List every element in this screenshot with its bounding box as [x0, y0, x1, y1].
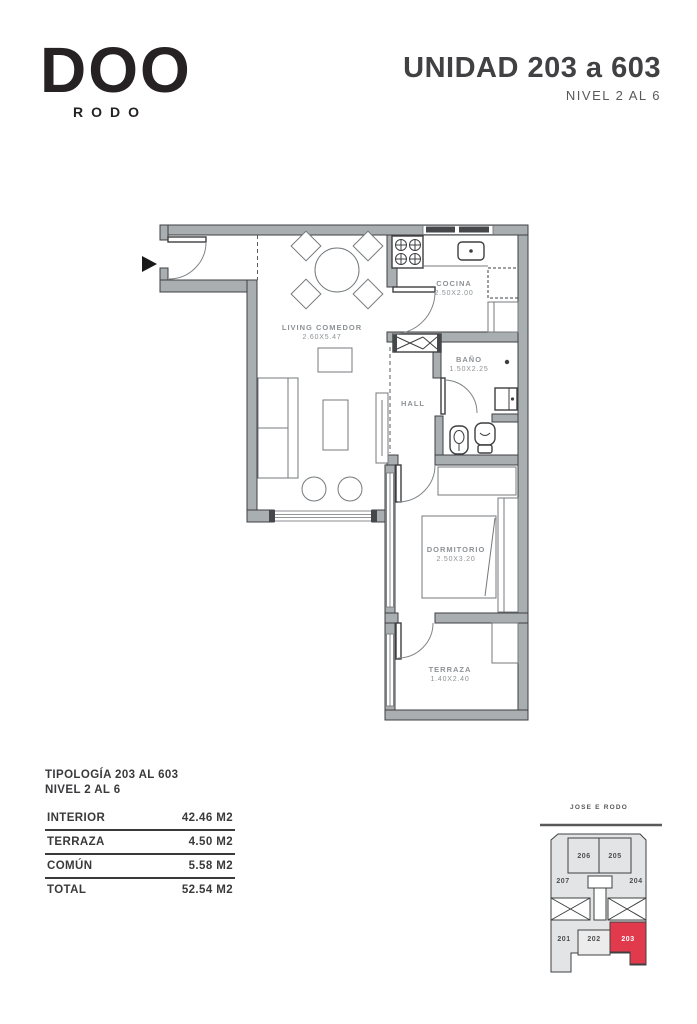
nivel-line: NIVEL 2 AL 6 — [45, 783, 235, 798]
entry-arrow-icon — [142, 256, 157, 272]
row-label: TOTAL — [47, 884, 86, 896]
bano-label: BAÑO — [456, 355, 482, 364]
vent-shaft — [393, 334, 441, 352]
cocina-dims: 2.50X2.00 — [434, 290, 473, 297]
cocina-label: COCINA — [436, 279, 472, 288]
kitchen-door-arc — [393, 292, 435, 334]
core-corridor — [594, 888, 606, 920]
sofa — [258, 378, 298, 478]
brand-logo: DOO RODO — [40, 38, 190, 120]
bedroom-door-leaf — [396, 465, 401, 502]
living-window — [274, 511, 372, 521]
bidet — [450, 426, 468, 454]
row-label: INTERIOR — [47, 812, 105, 824]
hall-label: HALL — [401, 399, 425, 408]
light-well-left — [551, 898, 590, 920]
pouf-2 — [338, 477, 362, 501]
bath-door-arc — [445, 380, 477, 413]
light-well-right — [608, 898, 646, 920]
dormitorio-label: DORMITORIO — [427, 545, 486, 554]
entry-door-leaf — [168, 237, 206, 242]
bano-dims: 1.50X2.25 — [449, 366, 488, 373]
row-label: COMÚN — [47, 860, 92, 872]
unit-203-highlight — [610, 922, 646, 964]
area-table: TIPOLOGÍA 203 AL 603 NIVEL 2 AL 6 INTERI… — [45, 768, 235, 901]
unit-title-block: UNIDAD 203 a 603 NIVEL 2 AL 6 — [403, 52, 661, 103]
kitchen-door-leaf — [393, 287, 435, 292]
kitchen-cabinet — [488, 302, 518, 332]
living-furniture — [258, 231, 388, 501]
pouf-1 — [302, 477, 326, 501]
row-value: 5.58 M2 — [189, 860, 233, 872]
row-value: 4.50 M2 — [189, 836, 233, 848]
area-table-heading: TIPOLOGÍA 203 AL 603 NIVEL 2 AL 6 — [45, 768, 235, 798]
terrace-door-leaf — [396, 623, 401, 659]
unit-207-label: 207 — [556, 878, 569, 885]
table-row: COMÚN 5.58 M2 — [45, 855, 235, 879]
unit-206-label: 206 — [577, 853, 590, 860]
terraza-dims: 1.40X2.40 — [430, 676, 469, 683]
coffee-table — [323, 400, 348, 450]
row-value: 52.54 M2 — [182, 884, 233, 896]
unit-subtitle: NIVEL 2 AL 6 — [403, 88, 661, 103]
unit-204-label: 204 — [629, 878, 642, 885]
floorplan-page: DOO RODO UNIDAD 203 a 603 NIVEL 2 AL 6 — [0, 0, 697, 1024]
terrace-door-arc — [398, 623, 433, 658]
bathroom-fixtures — [450, 360, 517, 454]
table-row: INTERIOR 42.46 M2 — [45, 807, 235, 831]
tv-unit — [376, 393, 388, 463]
key-plan: JOSE E RODO — [538, 792, 690, 1012]
bedroom-furniture — [422, 467, 518, 612]
dormitorio-dims: 2.50X3.20 — [436, 556, 475, 563]
bedroom-door-arc — [398, 465, 435, 502]
table-row: TOTAL 52.54 M2 — [45, 879, 235, 901]
fridge — [488, 268, 518, 298]
shower-drain — [505, 360, 509, 364]
dresser — [438, 467, 516, 495]
brand-logo-text: DOO — [40, 38, 190, 102]
bath-sink — [495, 388, 517, 410]
unit-205-label: 205 — [608, 853, 621, 860]
sideboard — [318, 348, 352, 372]
toilet — [475, 423, 495, 453]
terrace-planter — [492, 623, 518, 663]
unit-201-label: 201 — [557, 936, 570, 943]
unit-title: UNIDAD 203 a 603 — [403, 52, 661, 85]
living-label: LIVING COMEDOR — [282, 323, 362, 332]
row-label: TERRAZA — [47, 836, 105, 848]
floor-plan-svg: LIVING COMEDOR 2.60X5.47 COCINA 2.50X2.0… — [140, 210, 540, 740]
street-label: JOSE E RODO — [570, 804, 628, 811]
brand-logo-subtext: RODO — [40, 104, 180, 120]
closet — [498, 498, 518, 612]
key-plan-svg: JOSE E RODO — [538, 792, 690, 1007]
table-row: TERRAZA 4.50 M2 — [45, 831, 235, 855]
dining-table — [315, 248, 359, 292]
entry-door-arc — [169, 242, 206, 279]
floor-plan: LIVING COMEDOR 2.60X5.47 COCINA 2.50X2.0… — [140, 210, 540, 740]
living-dims: 2.60X5.47 — [302, 334, 341, 341]
unit-203-label: 203 — [621, 936, 634, 943]
row-value: 42.46 M2 — [182, 812, 233, 824]
terraza-label: TERRAZA — [429, 665, 472, 674]
core-lobby — [588, 876, 612, 888]
bath-door-leaf — [441, 378, 445, 414]
unit-202-label: 202 — [587, 936, 600, 943]
tipologia-line: TIPOLOGÍA 203 AL 603 — [45, 768, 235, 783]
